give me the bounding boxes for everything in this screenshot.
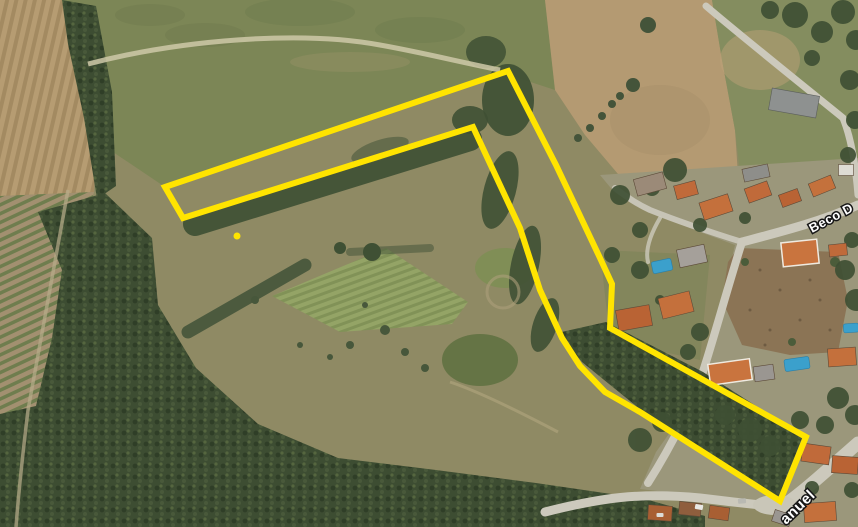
parcel-marker-dot	[234, 233, 241, 240]
map-canvas[interactable]: Beco D anuel	[0, 0, 858, 527]
satellite-image: Beco D anuel	[0, 0, 858, 527]
